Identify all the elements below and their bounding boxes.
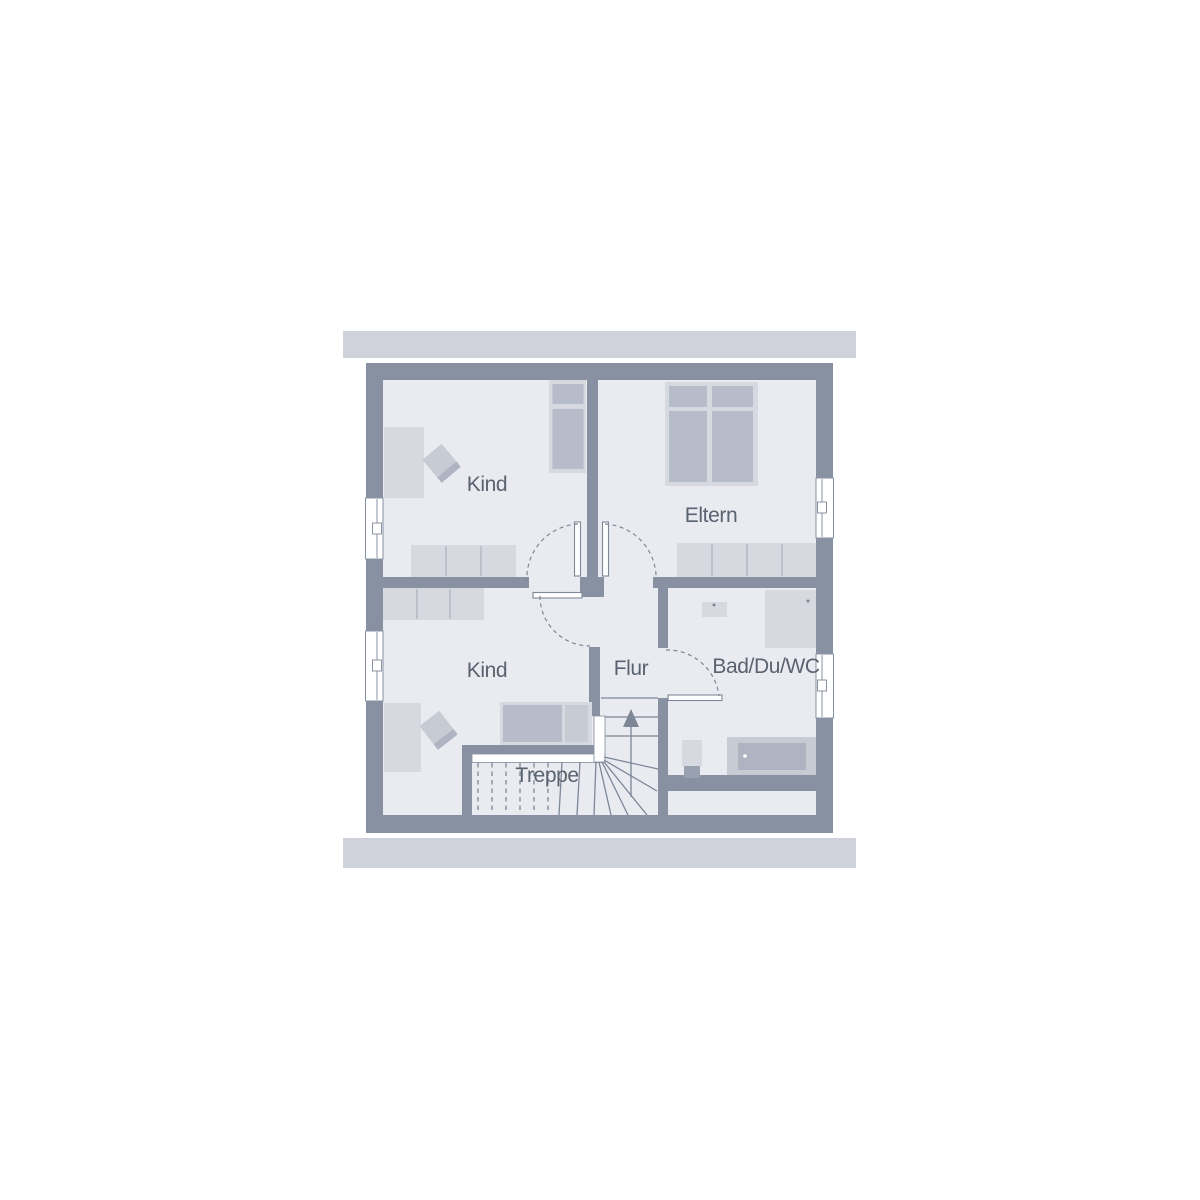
bed-pillow-right: [712, 386, 753, 407]
wall-horizontal-right: [653, 577, 816, 588]
wardrobe: [383, 588, 484, 620]
stair-rail-vertical: [594, 716, 605, 762]
bed-pillow: [565, 705, 588, 742]
desk: [384, 427, 424, 498]
shower: [765, 590, 816, 648]
outer-wall-top: [366, 363, 833, 380]
floor-plan-page: Kind Eltern: [0, 0, 1200, 1200]
room-label-eltern: Eltern: [685, 504, 737, 527]
door-leaf: [603, 522, 609, 576]
wall-stair-horizontal: [462, 745, 603, 755]
bed-mattress: [503, 705, 562, 742]
bed-mattress-right: [712, 411, 753, 482]
bed-single: [549, 380, 586, 473]
window-kind-bottom: [366, 631, 384, 701]
stair-rail-horizontal: [472, 754, 605, 763]
wardrobe: [677, 543, 816, 577]
wardrobe: [411, 545, 516, 577]
outer-wall-left: [366, 363, 383, 833]
double-bed: [665, 382, 758, 486]
wall-horizontal-left: [383, 577, 529, 588]
bed-mattress: [553, 409, 584, 469]
wall-center-foot: [580, 577, 604, 597]
toilet: [682, 740, 702, 778]
bed-pillow-left: [669, 386, 707, 407]
room-label-kind-bottom: Kind: [467, 659, 507, 682]
window-eltern: [816, 478, 834, 538]
room-label-kind-top: Kind: [467, 473, 507, 496]
wall-center-vertical: [587, 380, 598, 577]
room-label-flur: Flur: [614, 657, 649, 680]
outer-wall-right: [816, 363, 833, 833]
wall-bad-upper: [658, 588, 668, 648]
bed-mattress-left: [669, 411, 707, 482]
room-label-treppe: Treppe: [515, 764, 578, 787]
bed-single: [500, 702, 592, 745]
outer-wall-bottom: [366, 815, 833, 833]
door-leaf: [575, 522, 581, 576]
wall-stair-vertical: [462, 745, 472, 815]
room-label-bad: Bad/Du/WC: [712, 655, 819, 678]
desk: [384, 703, 421, 772]
roof-overhang-top: [343, 331, 856, 358]
wall-bad-lower: [658, 698, 668, 815]
roof-overhang-bottom: [343, 838, 856, 868]
bathtub: [727, 737, 816, 775]
bed-pillow: [553, 384, 584, 404]
window-kind-top: [366, 498, 384, 559]
door-leaf: [668, 695, 722, 701]
sink: [702, 602, 727, 617]
floor-plan-svg: Kind Eltern: [0, 0, 1200, 1200]
